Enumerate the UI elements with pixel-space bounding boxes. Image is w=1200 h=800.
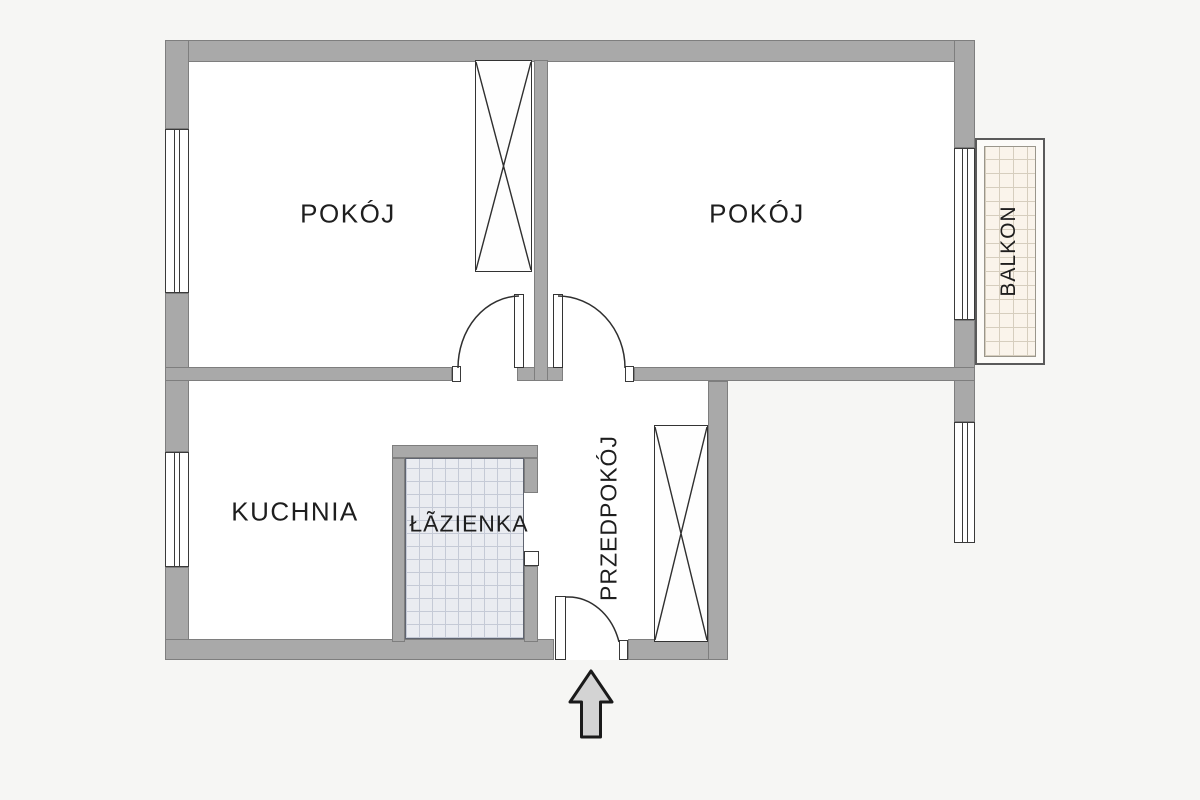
entrance-arrow-shape: [570, 671, 612, 737]
wall-bathroom-top: [392, 445, 538, 458]
label-kitchen: KUCHNIA: [231, 497, 359, 528]
wardrobe-hallway: [654, 425, 708, 642]
window-room1: [165, 129, 189, 293]
door-leaf-room1: [514, 294, 524, 368]
wall-bathroom-right-upper: [524, 458, 538, 493]
wall-kitchen-top: [165, 367, 452, 381]
wall-room-divider: [534, 60, 548, 381]
wall-top: [165, 40, 975, 62]
wall-right-upper: [954, 40, 975, 148]
window-exterior-stub: [954, 422, 975, 543]
wall-hallway-right: [708, 381, 728, 660]
jamb-bathroom-door: [524, 551, 539, 566]
wardrobe-room1: [475, 60, 532, 272]
bathroom-tile-floor: [405, 458, 524, 639]
floor-plan-canvas: POKÓJ POKÓJ KUCHNIA ŁÃZIENKA PRZEDPOKÓJ …: [0, 0, 1200, 800]
label-hallway: PRZEDPOKÓJ: [596, 435, 623, 601]
wall-bathroom-right-lower: [524, 566, 538, 642]
label-room2: POKÓJ: [709, 199, 805, 230]
door-leaf-room2: [553, 294, 563, 368]
wall-bathroom-left: [392, 458, 405, 642]
window-balcony-door: [954, 148, 975, 320]
label-room1: POKÓJ: [300, 199, 396, 230]
label-balcony: BALKON: [997, 205, 1021, 296]
window-kitchen: [165, 452, 189, 567]
door-leaf-entrance: [555, 596, 566, 660]
jamb-room2-door: [625, 366, 634, 382]
jamb-room1-door: [452, 366, 461, 382]
label-bathroom: ŁÃZIENKA: [409, 511, 528, 538]
floor-upper-rooms: [177, 50, 965, 373]
wall-bottom-left: [165, 639, 554, 660]
wall-left-upper: [165, 40, 189, 129]
jamb-entrance-door: [619, 640, 628, 660]
wall-room2-bottom: [634, 367, 975, 381]
